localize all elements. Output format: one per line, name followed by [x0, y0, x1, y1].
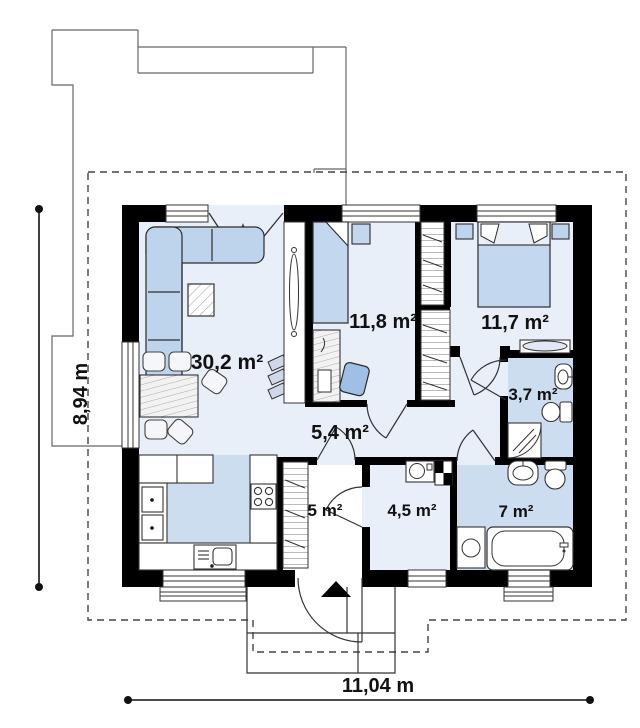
- window: [163, 570, 245, 587]
- partition-cabinet: [284, 222, 305, 403]
- water-heater: [406, 461, 434, 482]
- bathtub: [487, 527, 573, 570]
- window: [122, 342, 139, 448]
- kitchen-sink: [194, 545, 236, 569]
- room-label-bathroom-large: 7 m²: [499, 502, 534, 521]
- window: [408, 570, 446, 587]
- room-label-bedroom1: 11,8 m²: [349, 311, 417, 333]
- sliding-door: [290, 254, 299, 330]
- window: [477, 205, 556, 222]
- wardrobe: [421, 310, 450, 400]
- dimension-depth-label: 8,94 m: [70, 363, 92, 425]
- floor-plan-drawing: 8,94 m 11,04 m 30,2 m² 11,8 m² 11,7 m² 3…: [0, 0, 640, 728]
- window-sill: [160, 587, 246, 601]
- dimension-bottom: 11,04 m: [124, 675, 594, 704]
- room-label-vestibule: 5 m²: [308, 501, 343, 520]
- room-label-hall: 5,4 m²: [311, 422, 369, 444]
- wardrobe: [421, 222, 444, 305]
- washbasin: [555, 364, 573, 389]
- toilet: [542, 402, 572, 422]
- window: [508, 570, 550, 587]
- wardrobe: [283, 462, 308, 568]
- coffee-table: [188, 284, 214, 316]
- floor-opening: [208, 205, 284, 223]
- window: [166, 205, 208, 222]
- nightstand: [456, 224, 473, 239]
- porch-steps: [247, 587, 395, 673]
- floor-plan: 8,94 m 11,04 m 30,2 m² 11,8 m² 11,7 m² 3…: [0, 0, 640, 728]
- nightstand: [552, 224, 569, 239]
- dining-chair: [143, 352, 165, 371]
- cooktop: [251, 484, 276, 509]
- window-sill: [504, 587, 553, 601]
- desk: [313, 330, 340, 402]
- washing-machine: [457, 527, 485, 568]
- shower: [508, 423, 541, 458]
- room-label-utility: 4,5 m²: [387, 501, 436, 520]
- room-label-bedroom2: 11,7 m²: [481, 312, 549, 334]
- dimension-left: 8,94 m: [35, 205, 92, 591]
- dimension-width-label: 11,04 m: [342, 675, 414, 697]
- room-label-living: 30,2 m²: [191, 351, 263, 374]
- dresser: [520, 340, 570, 353]
- pillow: [352, 224, 370, 244]
- room-label-bathroom-small: 3,7 m²: [508, 385, 557, 404]
- toilet: [545, 461, 566, 489]
- washbasin: [508, 461, 538, 485]
- dining-chair: [145, 420, 167, 439]
- dining-chair: [169, 352, 191, 371]
- boiler: [435, 461, 452, 485]
- double-bed: [478, 222, 550, 307]
- window: [342, 205, 420, 222]
